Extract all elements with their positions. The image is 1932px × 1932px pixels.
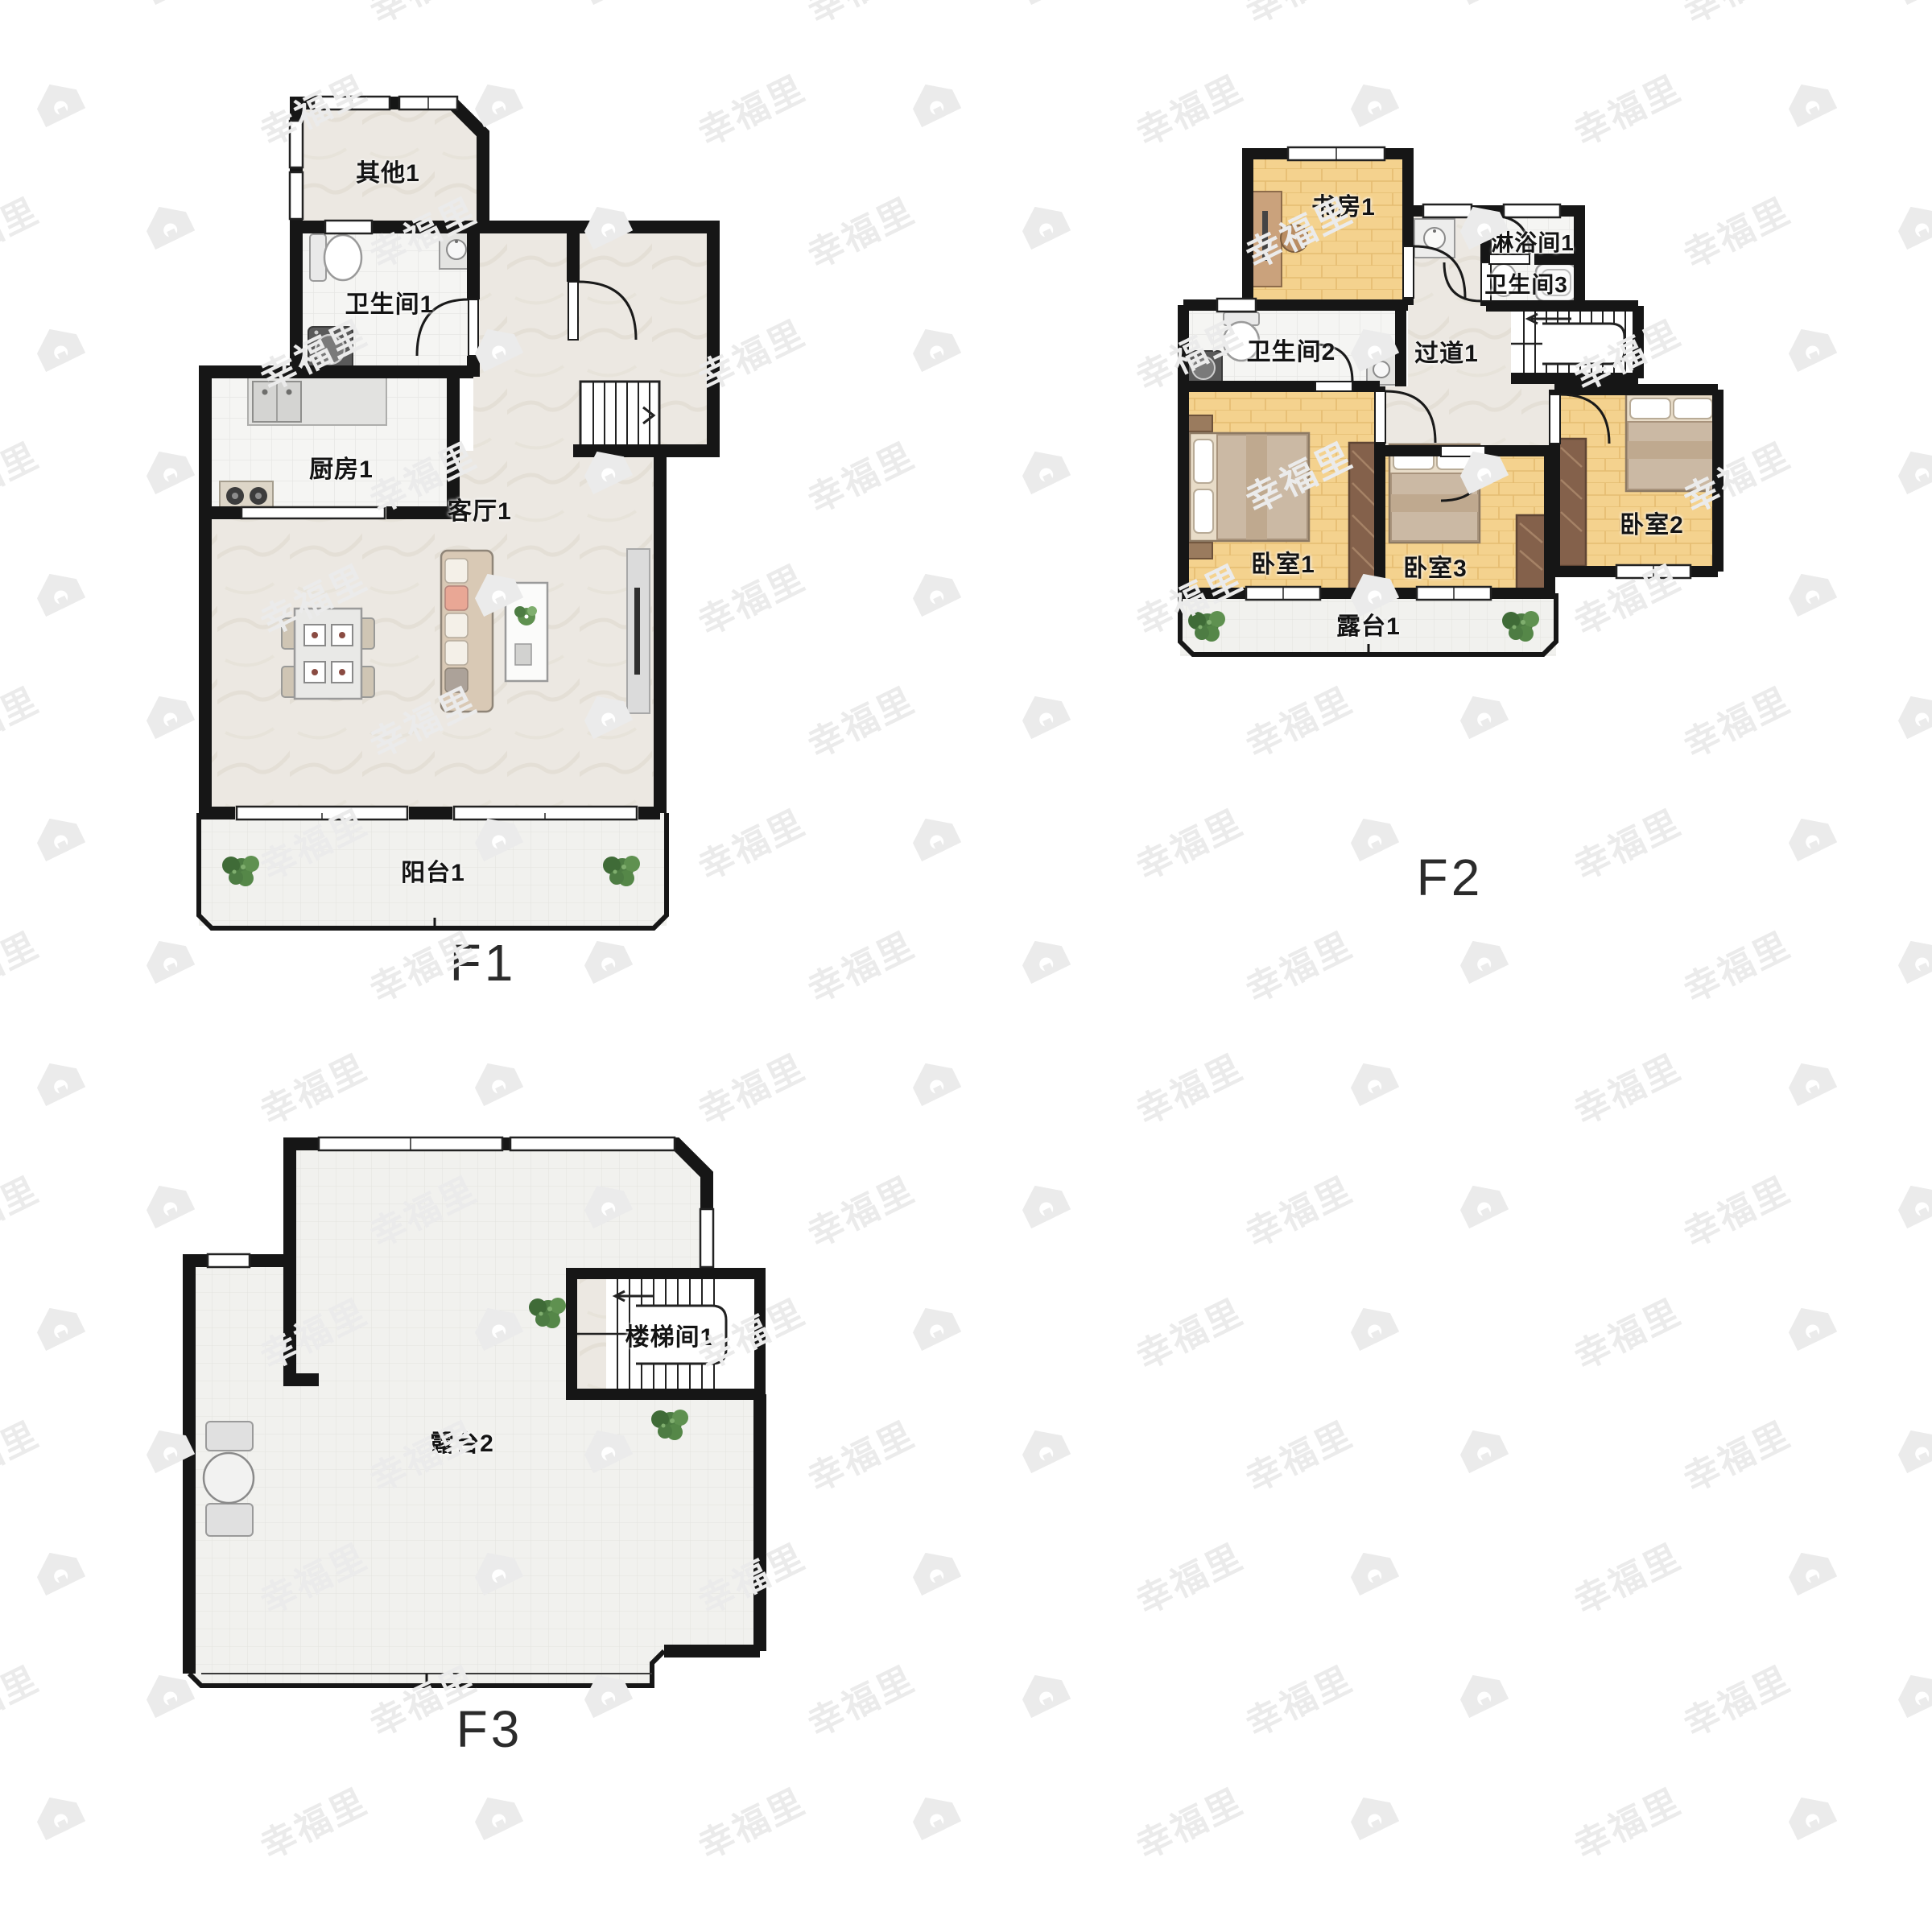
room-label-hallway1: 过道1 (1414, 333, 1479, 369)
floor-title-f1: F1 (450, 933, 517, 993)
room-label-stairwell1: 楼梯间1 (625, 1317, 715, 1352)
room-label-shower1: 淋浴间1 (1491, 225, 1575, 258)
room-label-bathroom3: 卫生间3 (1484, 267, 1568, 299)
room-label-kitchen1: 厨房1 (309, 449, 374, 485)
room-label-other1: 其他1 (356, 153, 420, 188)
room-label-terrace2: 露台2 (430, 1423, 494, 1459)
room-label-living1: 客厅1 (448, 491, 512, 526)
room-label-bedroom3: 卧室3 (1403, 548, 1468, 584)
room-label-terrace1: 露台1 (1336, 606, 1401, 642)
floor-title-f2: F2 (1417, 848, 1484, 907)
room-label-study1: 书房1 (1311, 187, 1376, 222)
floorplan-page: 幸福里幸福里幸福里幸福里幸福里幸福里幸福里幸福里幸福里幸福里幸福里幸福里幸福里幸… (0, 0, 1932, 1932)
room-label-bedroom1: 卧室1 (1251, 544, 1315, 580)
room-label-balcony1: 阳台1 (401, 852, 465, 888)
floor-title-f3: F3 (456, 1699, 523, 1759)
room-label-bathroom2: 卫生间2 (1247, 332, 1336, 367)
room-label-bathroom1: 卫生间1 (345, 284, 435, 320)
room-label-bedroom2: 卧室2 (1620, 505, 1684, 540)
label-layer: 其他1 卫生间1 厨房1 客厅1 阳台1 F1 书房1 淋浴间1 卫生间3 卫生… (0, 0, 1932, 1932)
